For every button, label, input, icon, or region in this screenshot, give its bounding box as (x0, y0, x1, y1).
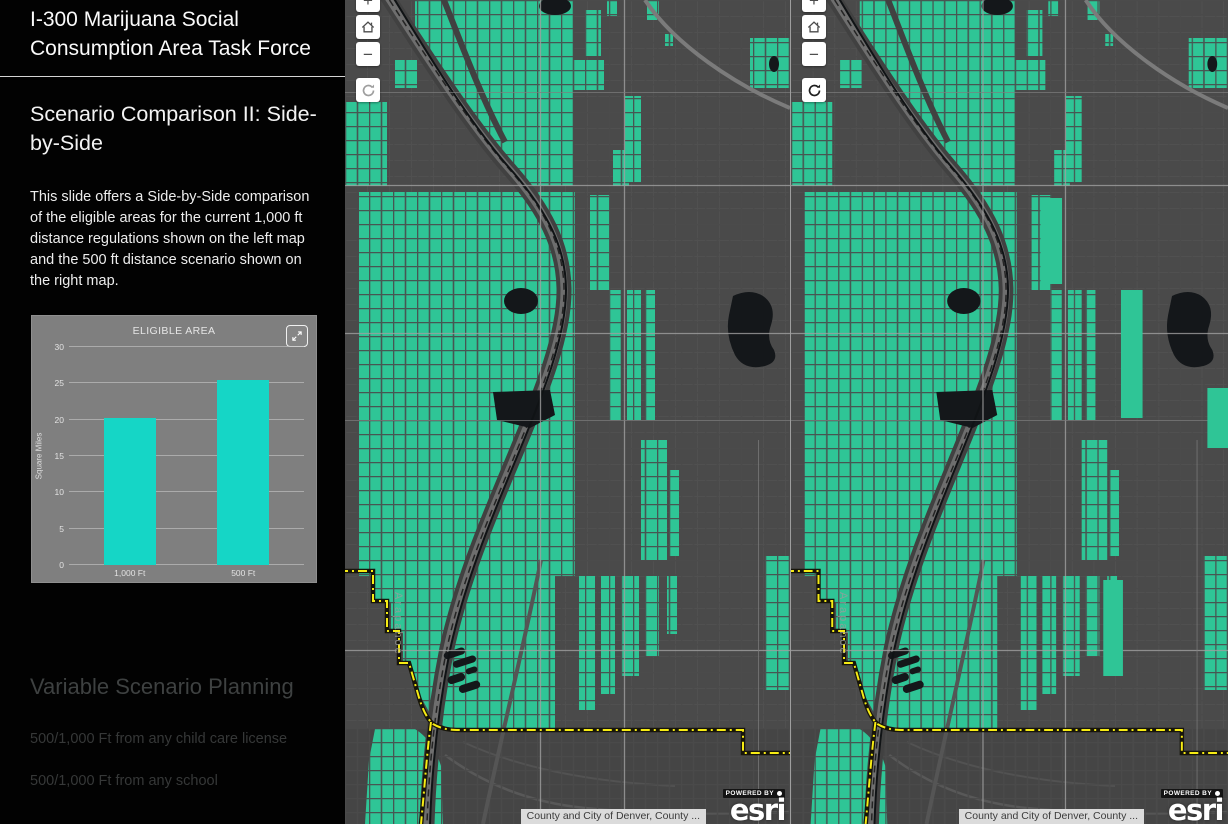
next-slide-item: 500/1,000 Ft from any school (30, 772, 317, 791)
story-title: I-300 Marijuana Social Consumption Area … (30, 5, 317, 63)
zoom-in-button[interactable]: + (356, 0, 380, 12)
chart-x-tick: 1,000 Ft (95, 568, 165, 578)
chart-y-tick: 25 (55, 378, 64, 388)
zoom-out-button[interactable]: − (356, 42, 380, 66)
map-comparison: + − County and City of Denver, C (345, 0, 1228, 824)
chart-y-tick: 15 (55, 451, 64, 461)
chart-y-axis: 051015202530 (45, 347, 69, 565)
expand-chart-button[interactable] (286, 325, 308, 347)
home-button[interactable] (356, 15, 380, 39)
map-attribution[interactable]: County and City of Denver, County ... (521, 809, 706, 824)
map-canvas-left (345, 0, 790, 824)
story-panel: I-300 Marijuana Social Consumption Area … (0, 0, 345, 824)
esri-brand: esri (1161, 798, 1223, 823)
home-icon (807, 20, 821, 34)
esri-logo[interactable]: POWERED BY esri (1161, 789, 1223, 823)
zoom-out-button[interactable]: − (802, 42, 826, 66)
chart-x-tick: 500 Ft (208, 568, 278, 578)
chart-title: ELIGIBLE AREA (32, 325, 316, 337)
map-controls-right: + − (802, 0, 826, 102)
chart-bar (104, 418, 156, 565)
slide-description: This slide offers a Side-by-Side compari… (30, 187, 317, 292)
map-right-500ft[interactable]: + − County and City of Denver, C (790, 0, 1228, 824)
eligible-area-chart: ELIGIBLE AREA Square Miles 051015202530 (31, 315, 317, 583)
chart-y-tick: 20 (55, 415, 64, 425)
chart-plot (69, 347, 304, 565)
home-button[interactable] (802, 15, 826, 39)
expand-icon (291, 330, 303, 342)
story-header: I-300 Marijuana Social Consumption Area … (0, 0, 345, 77)
map-canvas-right (791, 0, 1228, 824)
next-slide-heading: Variable Scenario Planning (30, 671, 317, 702)
storymap-app: I-300 Marijuana Social Consumption Area … (0, 0, 1228, 824)
slide-heading: Scenario Comparison II: Side-by-Side (30, 100, 317, 158)
esri-brand: esri (723, 798, 785, 823)
chart-bar (217, 380, 269, 565)
chart-y-tick: 5 (59, 524, 64, 534)
esri-logo[interactable]: POWERED BY esri (723, 789, 785, 823)
refresh-icon (807, 83, 822, 98)
chart-y-axis-label: Square Miles (34, 433, 43, 480)
chart-x-axis: 1,000 Ft500 Ft (69, 568, 304, 578)
chart-y-tick: 30 (55, 342, 64, 352)
zoom-in-button[interactable]: + (802, 0, 826, 12)
home-icon (361, 20, 375, 34)
refresh-button[interactable] (356, 78, 380, 102)
chart-y-tick: 0 (59, 560, 64, 570)
chart-bars (69, 347, 304, 565)
map-controls-left: + − (356, 0, 380, 102)
map-left-1000ft[interactable]: + − County and City of Denver, C (345, 0, 790, 824)
chart-y-tick: 10 (55, 487, 64, 497)
refresh-button[interactable] (802, 78, 826, 102)
map-attribution[interactable]: County and City of Denver, County ... (959, 809, 1144, 824)
chart-body: Square Miles 051015202530 (32, 347, 316, 565)
next-slide-item: 500/1,000 Ft from any child care license (30, 730, 317, 749)
refresh-icon (361, 83, 376, 98)
